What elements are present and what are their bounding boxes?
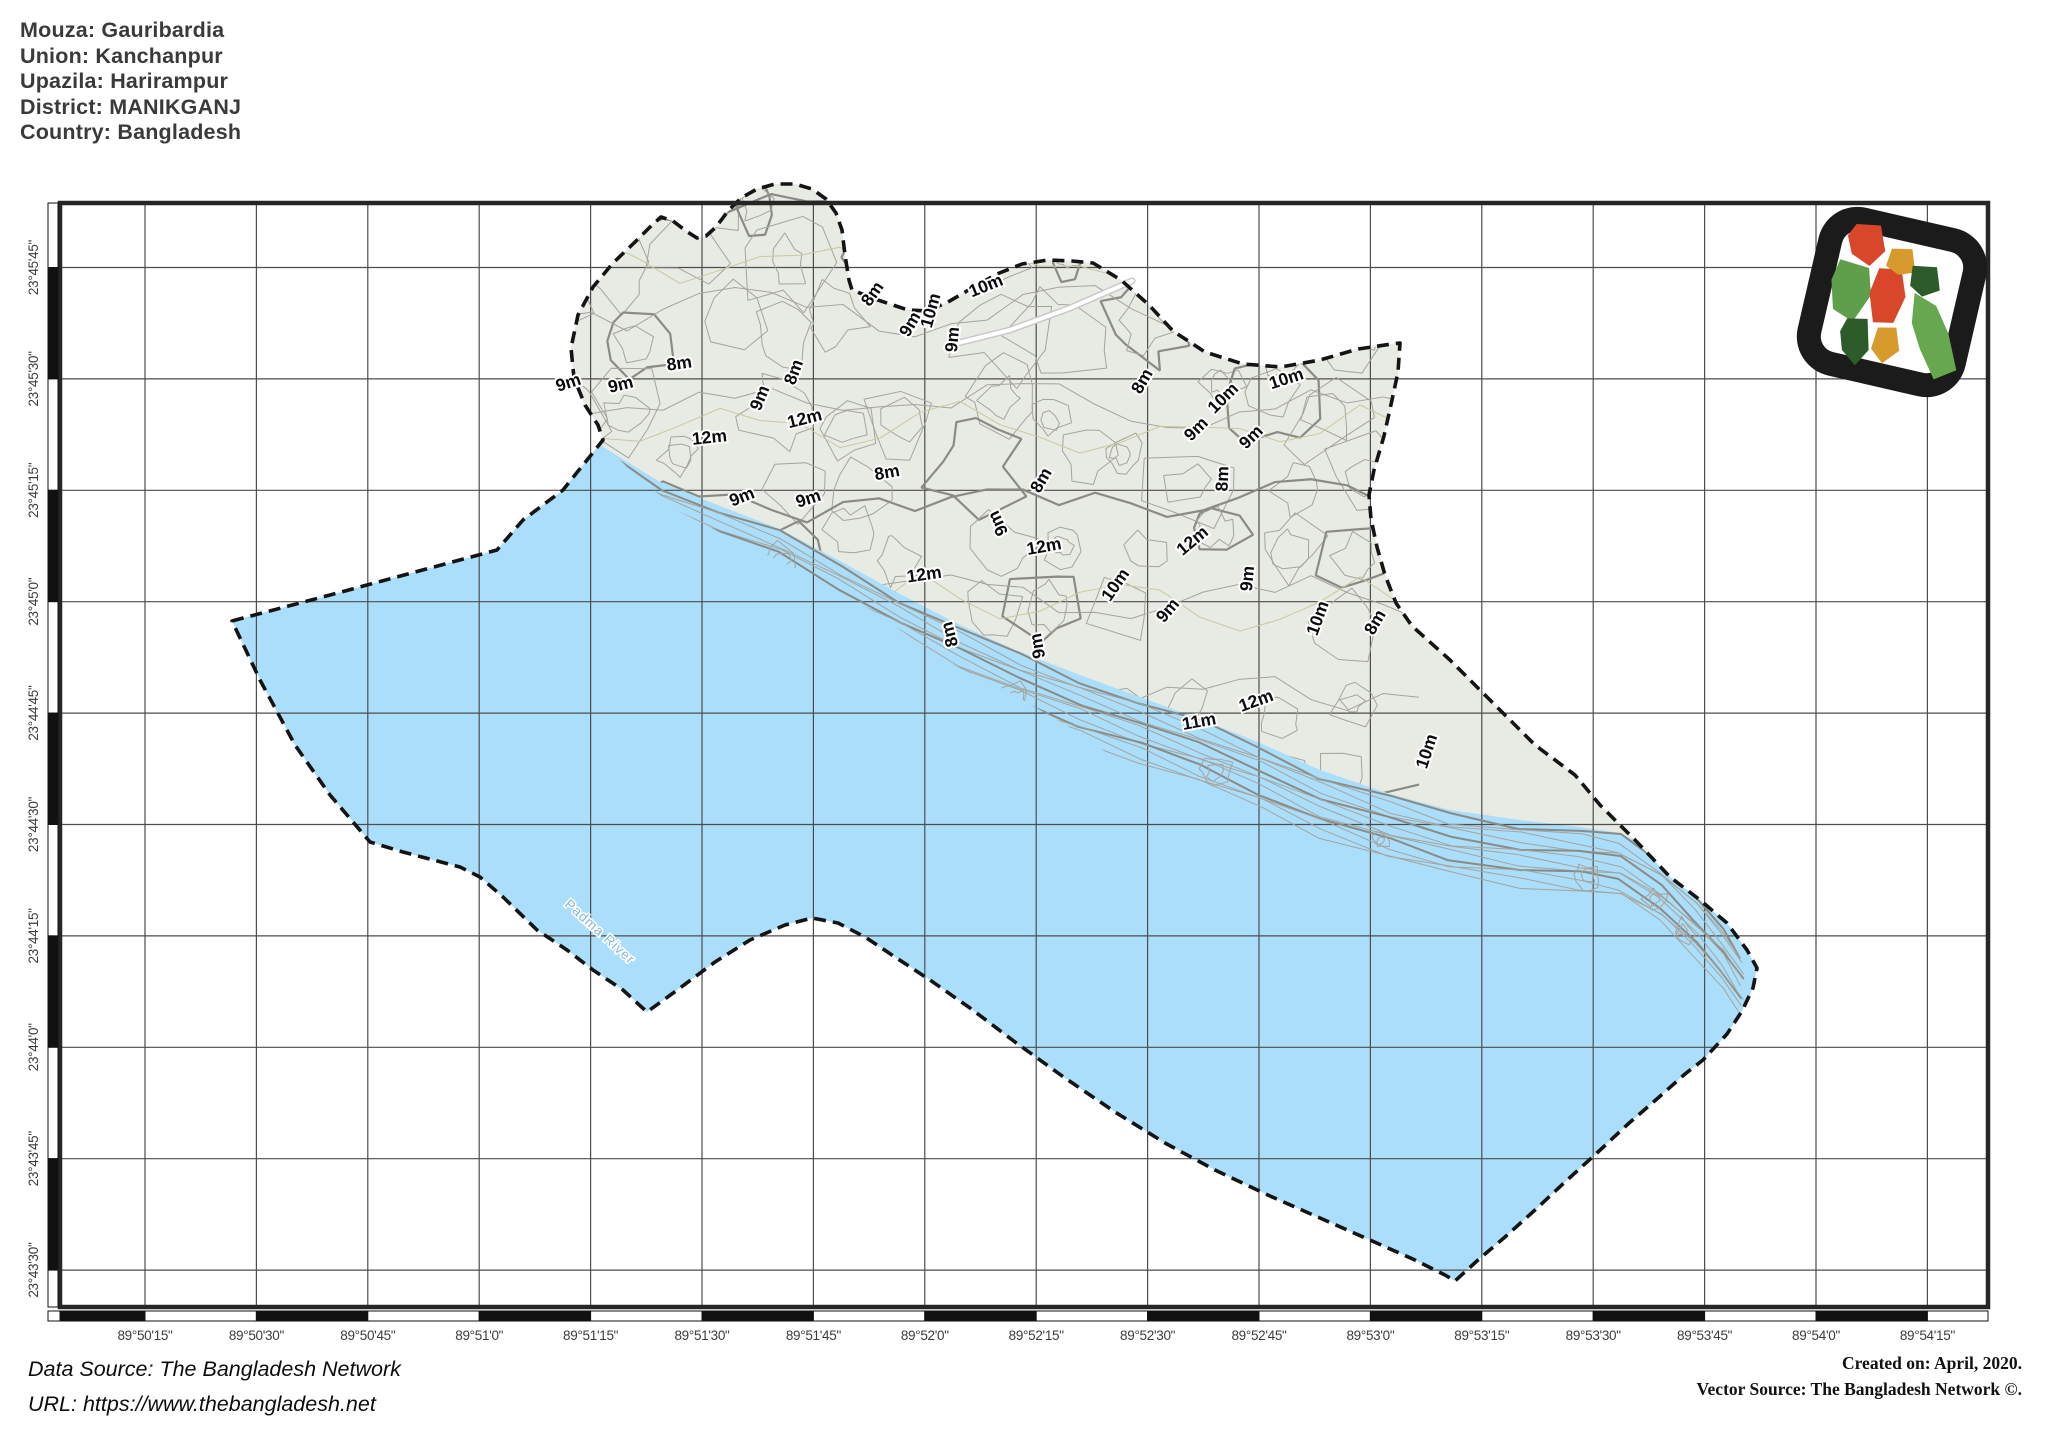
zebra-bottom-segment bbox=[813, 1311, 924, 1321]
zebra-bottom-segment bbox=[1259, 1311, 1370, 1321]
zebra-left-segment bbox=[48, 379, 58, 490]
x-axis-label: 89°50'45" bbox=[340, 1328, 396, 1343]
zebra-bottom-segment bbox=[925, 1311, 1036, 1321]
contour-label: 9m bbox=[1236, 565, 1258, 592]
zebra-bottom-segment bbox=[1482, 1311, 1593, 1321]
contour-ring bbox=[991, 185, 1022, 212]
contour-ring bbox=[968, 174, 1038, 224]
contour-ring bbox=[1167, 200, 1271, 275]
zebra-bottom-segment bbox=[145, 1311, 256, 1321]
zebra-left-segment bbox=[48, 825, 58, 936]
x-axis-label: 89°52'30" bbox=[1120, 1328, 1176, 1343]
y-axis-label: 23°45'45" bbox=[26, 239, 41, 295]
y-axis-label: 23°44'0" bbox=[26, 1023, 41, 1071]
x-axis-label: 89°50'30" bbox=[229, 1328, 285, 1343]
zebra-left-segment bbox=[48, 1047, 58, 1158]
y-axis-label: 23°43'45" bbox=[26, 1131, 41, 1187]
contour-ring bbox=[850, 236, 892, 279]
y-axis-label: 23°43'30" bbox=[26, 1242, 41, 1298]
contour-ring bbox=[1260, 259, 1313, 300]
zebra-bottom-segment bbox=[1705, 1311, 1816, 1321]
contour-label: 8m bbox=[665, 351, 693, 374]
y-axis-label: 23°45'0" bbox=[26, 577, 41, 625]
y-axis-label: 23°45'15" bbox=[26, 462, 41, 518]
x-axis-label: 89°50'15" bbox=[117, 1328, 173, 1343]
zebra-corner bbox=[48, 1311, 60, 1321]
contour-ring bbox=[1191, 221, 1247, 259]
vector-source-text: Vector Source: The Bangladesh Network ©. bbox=[1697, 1376, 2023, 1402]
x-axis-label: 89°52'15" bbox=[1009, 1328, 1065, 1343]
x-axis-label: 89°52'0" bbox=[901, 1328, 949, 1343]
zebra-bottom-segment bbox=[1593, 1311, 1704, 1321]
zebra-bottom-segment bbox=[1148, 1311, 1259, 1321]
contour-ring bbox=[1335, 300, 1379, 352]
x-axis-label: 89°53'30" bbox=[1566, 1328, 1622, 1343]
contour-ring bbox=[888, 247, 923, 284]
zebra-bottom-segment bbox=[1927, 1311, 1988, 1321]
footer-source-block: Data Source: The Bangladesh Network URL:… bbox=[28, 1352, 401, 1422]
map-canvas: Padma River 9m9m8m9m8m12m12m8m9m10m9m10m… bbox=[0, 0, 2048, 1448]
contour-label: 8m bbox=[1212, 466, 1233, 492]
x-axis-label: 89°52'45" bbox=[1231, 1328, 1287, 1343]
the-bangladesh-network-logo bbox=[1803, 213, 1984, 391]
x-axis-label: 89°53'15" bbox=[1454, 1328, 1510, 1343]
y-axis-label: 23°44'45" bbox=[26, 685, 41, 741]
zebra-bottom-segment bbox=[1816, 1311, 1927, 1321]
mouza-area bbox=[232, 184, 1757, 1281]
zebra-bottom-segment bbox=[591, 1311, 702, 1321]
y-axis-label: 23°44'30" bbox=[26, 796, 41, 852]
x-axis-label: 89°54'0" bbox=[1792, 1328, 1840, 1343]
zebra-left-segment bbox=[48, 268, 58, 379]
x-axis-label: 89°51'0" bbox=[455, 1328, 503, 1343]
zebra-bottom-segment bbox=[479, 1311, 590, 1321]
data-source-text: Data Source: The Bangladesh Network bbox=[28, 1352, 401, 1387]
x-axis-label: 89°51'15" bbox=[563, 1328, 619, 1343]
zebra-left-segment bbox=[48, 936, 58, 1047]
contour-ring bbox=[1328, 219, 1371, 263]
url-text: URL: https://www.thebangladesh.net bbox=[28, 1387, 401, 1422]
zebra-left-segment bbox=[48, 713, 58, 824]
zebra-bottom-segment bbox=[60, 1311, 145, 1321]
contour-ring bbox=[877, 227, 956, 296]
x-axis-label: 89°51'45" bbox=[786, 1328, 842, 1343]
zebra-left-segment bbox=[48, 1159, 58, 1270]
y-axis-label: 23°44'15" bbox=[26, 908, 41, 964]
zebra-bottom-segment bbox=[1036, 1311, 1147, 1321]
x-axis-label: 89°53'45" bbox=[1677, 1328, 1733, 1343]
zebra-left-segment bbox=[48, 602, 58, 713]
created-on-text: Created on: April, 2020. bbox=[1697, 1350, 2023, 1376]
contour-label: 9m bbox=[941, 326, 963, 353]
x-axis-label: 89°53'0" bbox=[1346, 1328, 1394, 1343]
map-sheet: Mouza: Gauribardia Union: Kanchanpur Upa… bbox=[0, 0, 2048, 1448]
zebra-left-segment bbox=[48, 1270, 58, 1307]
x-axis-label: 89°54'15" bbox=[1900, 1328, 1956, 1343]
y-axis-label: 23°45'30" bbox=[26, 351, 41, 407]
contour-ring bbox=[515, 167, 585, 250]
zebra-bottom-segment bbox=[1370, 1311, 1481, 1321]
contour-label: 12m bbox=[691, 425, 728, 449]
contour-ring bbox=[550, 298, 575, 325]
x-axis-label: 89°51'30" bbox=[674, 1328, 730, 1343]
zebra-left-segment bbox=[48, 203, 58, 268]
contour-ring bbox=[841, 212, 893, 279]
zebra-bottom-segment bbox=[256, 1311, 367, 1321]
zebra-bottom-segment bbox=[368, 1311, 479, 1321]
contour-ring bbox=[1342, 232, 1363, 250]
footer-credit-block: Created on: April, 2020. Vector Source: … bbox=[1697, 1350, 2023, 1402]
zebra-bottom-segment bbox=[702, 1311, 813, 1321]
logo-group bbox=[1803, 213, 1984, 391]
zebra-left-segment bbox=[48, 490, 58, 601]
